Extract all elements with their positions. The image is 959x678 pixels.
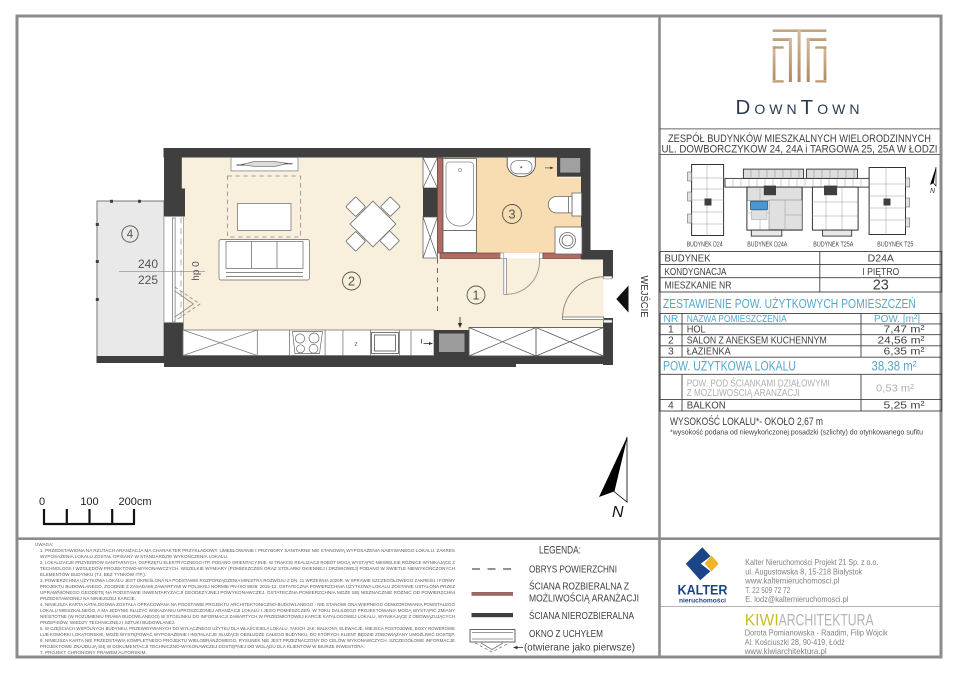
svg-text:4. NINIEJSZA KARTA KATALOGOWA: 4. NINIEJSZA KARTA KATALOGOWA ZOSTAŁA OP… [40, 602, 455, 607]
svg-text:SALON Z ANEKSEM KUCHENNYM: SALON Z ANEKSEM KUCHENNYM [687, 335, 827, 346]
svg-text:2. LOKALIZACJE PRZYBORÓW SANIT: 2. LOKALIZACJE PRZYBORÓW SANITARNYCH, OS… [40, 559, 455, 565]
svg-text:7. PROJEKT CHRONIONY PRAWEM AU: 7. PROJEKT CHRONIONY PRAWEM AUTORSKIM. [40, 650, 147, 655]
svg-text:3: 3 [668, 347, 674, 358]
svg-text:NIEISTOTNE (W ROZUMIENIU PRAWA: NIEISTOTNE (W ROZUMIENIU PRAWA BUDOWLANE… [40, 614, 455, 619]
svg-text:3. POWIERZCHNIA UŻYTKOWA LOKAL: 3. POWIERZCHNIA UŻYTKOWA LOKALU JEST OKR… [40, 576, 455, 583]
svg-text:24,56 m²: 24,56 m² [878, 335, 926, 346]
svg-text:38,38 m²: 38,38 m² [872, 358, 917, 373]
svg-text:2: 2 [348, 273, 355, 288]
svg-text:3: 3 [508, 207, 515, 222]
svg-text:ZESTAWIENIE POW. UŻYTKOWYCH PO: ZESTAWIENIE POW. UŻYTKOWYCH POMIESZCZEŃ [663, 296, 916, 311]
svg-text:KALTER: KALTER [678, 583, 728, 598]
svg-text:PROJEKTU BUDOWLANEGO, ZGODNIE: PROJEKTU BUDOWLANEGO, ZGODNIE Z ZASADAMI… [40, 583, 455, 589]
svg-text:MIESZKANIE NR: MIESZKANIE NR [665, 279, 732, 291]
svg-text:BUDYNEK T25: BUDYNEK T25 [877, 240, 913, 249]
svg-text:NR: NR [663, 314, 678, 325]
svg-text:1: 1 [472, 287, 479, 302]
svg-text:ŁAZIENKA: ŁAZIENKA [687, 347, 731, 358]
svg-text:HOL: HOL [687, 324, 706, 335]
svg-text:225: 225 [138, 273, 158, 287]
svg-text:DownTown: DownTown [736, 96, 863, 119]
svg-text:MOŻLIWOŚCIĄ ARANŻACJI: MOŻLIWOŚCIĄ ARANŻACJI [529, 592, 639, 605]
svg-text:BUDYNEK D24A: BUDYNEK D24A [747, 240, 787, 249]
svg-text:N: N [612, 504, 624, 521]
svg-text:POW. UŻYTKOWA LOKALU: POW. UŻYTKOWA LOKALU [663, 358, 796, 373]
svg-text:23: 23 [873, 278, 889, 294]
svg-text:1: 1 [668, 324, 674, 335]
svg-text:Al. Kościuszki 28, 90-419, Łód: Al. Kościuszki 28, 90-419, Łódź [745, 638, 845, 647]
svg-text:hp 0: hp 0 [191, 261, 202, 281]
svg-text:4: 4 [668, 400, 674, 411]
svg-text:ŚCIANA ROZBIERALNA Z: ŚCIANA ROZBIERALNA Z [529, 580, 629, 593]
svg-text:(otwierane jako pierwsze): (otwierane jako pierwsze) [524, 642, 635, 654]
svg-text:BUDYNEK: BUDYNEK [665, 253, 711, 265]
svg-text:5. W CZĘŚCIACH WSPÓLNYCH BUDYN: 5. W CZĘŚCIACH WSPÓLNYCH BUDYNKU, PRZEWI… [40, 624, 455, 631]
svg-text:PRZEPISÓW, WIEDZY TECHNICZNEJ: PRZEPISÓW, WIEDZY TECHNICZNEJ I SZTUKI B… [40, 619, 175, 625]
svg-text:TECHNOLOGII I WZGLĘDÓW PROJEKT: TECHNOLOGII I WZGLĘDÓW PROJEKTOWO-WYKONA… [40, 564, 455, 571]
svg-text:Z MOŻLIWOŚCIĄ ARANŻACJI: Z MOŻLIWOŚCIĄ ARANŻACJI [687, 386, 800, 399]
svg-text:Kalter Nieruchomości Projekt 2: Kalter Nieruchomości Projekt 21 Sp. z o.… [745, 558, 878, 567]
svg-text:WYSOKOŚĆ LOKALU*- OKOŁO 2,67 m: WYSOKOŚĆ LOKALU*- OKOŁO 2,67 m [670, 415, 823, 428]
svg-text:ŚCIANA NIEROZBIERALNA: ŚCIANA NIEROZBIERALNA [529, 609, 634, 622]
svg-text:OBRYS POWIERZCHNI: OBRYS POWIERZCHNI [529, 564, 617, 576]
svg-text:WYPOSAŻENIA LOKALU ZOSTAŁ OPIS: WYPOSAŻENIA LOKALU ZOSTAŁ OPISANY W STAN… [40, 553, 228, 559]
svg-text:7,47 m²: 7,47 m² [884, 324, 926, 335]
svg-text:www.kalternieruchomosci.pl: www.kalternieruchomosci.pl [744, 577, 839, 586]
svg-text:UPRAWNIONEGO GEODETĘ NA PODSTA: UPRAWNIONEGO GEODETĘ NA PODSTAWIE INWENT… [40, 589, 455, 595]
svg-text:2: 2 [668, 335, 674, 346]
svg-text:I PIĘTRO: I PIĘTRO [862, 266, 899, 278]
svg-text:PROJEKTOWE ZNAJDUJĄ SIĘ W DOKU: PROJEKTOWE ZNAJDUJĄ SIĘ W DOKUMENTACJI T… [40, 643, 365, 649]
svg-text:0: 0 [39, 496, 45, 508]
svg-text:UL. DOWBORCZYKÓW 24, 24A i TAR: UL. DOWBORCZYKÓW 24, 24A i TARGOWA 25, 2… [662, 143, 938, 156]
svg-text:N: N [930, 188, 936, 195]
svg-text:*wysokość podana od niewykończ: *wysokość podana od niewykończonej posad… [670, 428, 923, 437]
svg-text:ul. Augustowska 8, 15-218 Biał: ul. Augustowska 8, 15-218 Białystok [745, 567, 863, 576]
svg-text:4: 4 [127, 229, 134, 241]
svg-text:KONDYGNACJA: KONDYGNACJA [665, 266, 727, 278]
svg-text:KIWI: KIWI [745, 612, 779, 630]
svg-text:LEGENDA:: LEGENDA: [539, 545, 581, 557]
svg-text:z: z [354, 341, 357, 348]
svg-text:E. lodz@kalternieruchomosci.pl: E. lodz@kalternieruchomosci.pl [745, 595, 848, 604]
svg-text:5,25 m²: 5,25 m² [884, 400, 926, 411]
svg-text:200cm: 200cm [118, 496, 151, 508]
svg-text:1. PRZEDSTAWIONA NA RZUTACH AR: 1. PRZEDSTAWIONA NA RZUTACH ARANŻACJA MA… [40, 547, 455, 553]
svg-text:100: 100 [80, 496, 98, 508]
svg-text:LOKALU MIESZKALNEGO, A MA JEDY: LOKALU MIESZKALNEGO, A MA JEDYNIE SŁUŻYĆ… [40, 607, 455, 613]
svg-text:WEJŚCIE: WEJŚCIE [638, 276, 651, 318]
svg-text:T. 22 509 72 72: T. 22 509 72 72 [745, 586, 790, 595]
svg-text:LUB KOMÓRKI LOKATORSKIE, MOŻE: LUB KOMÓRKI LOKATORSKIE, MOŻE WYSTĘPOWAĆ… [40, 631, 455, 637]
svg-text:BALKON: BALKON [687, 400, 726, 411]
svg-text:PRZEDSTAWIONEJ NA NINIEJSZEJ K: PRZEDSTAWIONEJ NA NINIEJSZEJ KARCIE. [40, 596, 136, 601]
svg-text:UWAGA:: UWAGA: [35, 542, 53, 547]
svg-text:POW. [m²]: POW. [m²] [874, 314, 920, 325]
svg-text:ARCHITEKTURA: ARCHITEKTURA [779, 612, 874, 630]
svg-text:ELEMENTÓW BUDYNKU (TJ. BEZ TYN: ELEMENTÓW BUDYNKU (TJ. BEZ TYNKÓW ITP.). [40, 571, 146, 577]
svg-text:D24A: D24A [868, 253, 894, 265]
svg-text:240: 240 [138, 257, 158, 271]
svg-text:nieruchomości: nieruchomości [679, 598, 726, 605]
svg-text:0,53 m²: 0,53 m² [876, 384, 915, 395]
svg-text:www.kiwiarchitektura.pl: www.kiwiarchitektura.pl [744, 647, 827, 656]
svg-text:6,35 m²: 6,35 m² [884, 347, 926, 358]
svg-text:NAZWA POMIESZCZENIA: NAZWA POMIESZCZENIA [687, 314, 787, 325]
svg-text:Dorota Pomianowska - Raadim, F: Dorota Pomianowska - Raadim, Filip Wójci… [745, 629, 889, 638]
svg-text:BUDYNEK T25A: BUDYNEK T25A [813, 240, 853, 249]
svg-text:BUDYNEK D24: BUDYNEK D24 [687, 240, 723, 249]
svg-text:OKNO Z UCHYŁEM: OKNO Z UCHYŁEM [529, 628, 603, 640]
svg-text:6. NINIEJSZA KARTA NIE PRZEDST: 6. NINIEJSZA KARTA NIE PRZEDSTAWIA KOMPL… [40, 637, 455, 643]
